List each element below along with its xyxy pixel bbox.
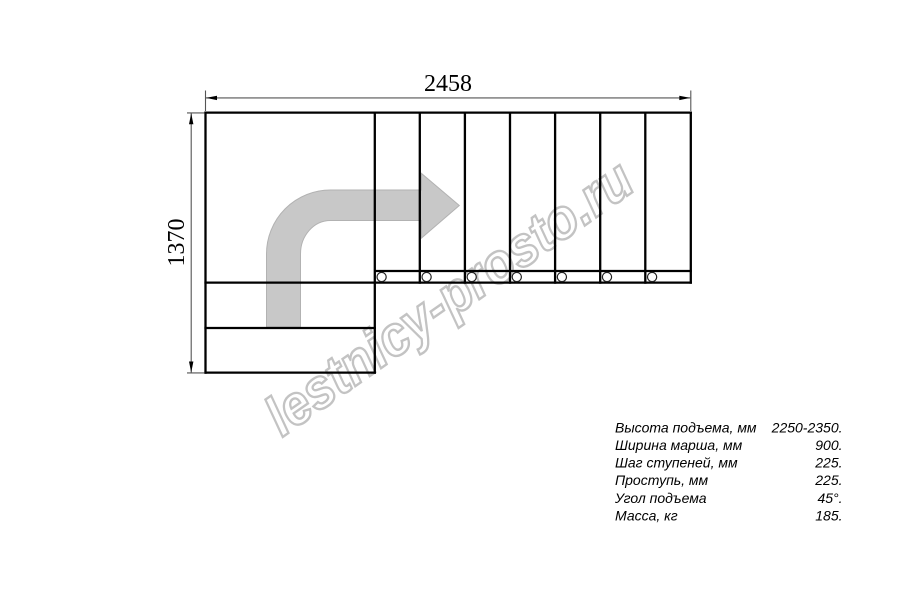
svg-text:225.: 225. <box>814 455 842 471</box>
svg-text:lestnicy-prosto.ru: lestnicy-prosto.ru <box>253 147 645 448</box>
svg-text:2250-2350.: 2250-2350. <box>771 420 843 436</box>
svg-text:Шаг ступеней, мм: Шаг ступеней, мм <box>615 455 738 471</box>
svg-text:Проступь, мм: Проступь, мм <box>615 472 709 488</box>
svg-text:2458: 2458 <box>424 71 472 97</box>
svg-text:185.: 185. <box>815 507 842 523</box>
svg-text:Ширина марша, мм: Ширина марша, мм <box>615 437 743 453</box>
svg-text:Угол подъема: Угол подъема <box>614 490 707 506</box>
svg-text:45°.: 45°. <box>817 490 842 506</box>
svg-text:1370: 1370 <box>164 219 190 267</box>
svg-text:900.: 900. <box>815 437 842 453</box>
svg-text:225.: 225. <box>814 472 842 488</box>
svg-text:Масса, кг: Масса, кг <box>615 507 678 523</box>
svg-text:Высота подъема, мм: Высота подъема, мм <box>615 420 757 436</box>
